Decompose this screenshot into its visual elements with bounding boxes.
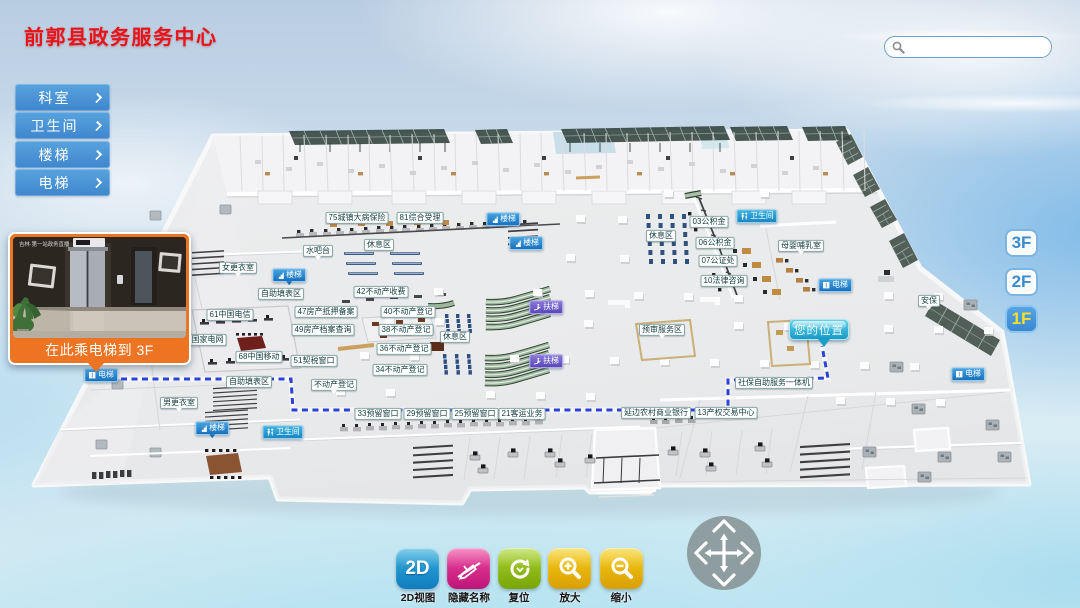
- svg-text:吉林·第一站政务直播: 吉林·第一站政务直播: [19, 240, 70, 248]
